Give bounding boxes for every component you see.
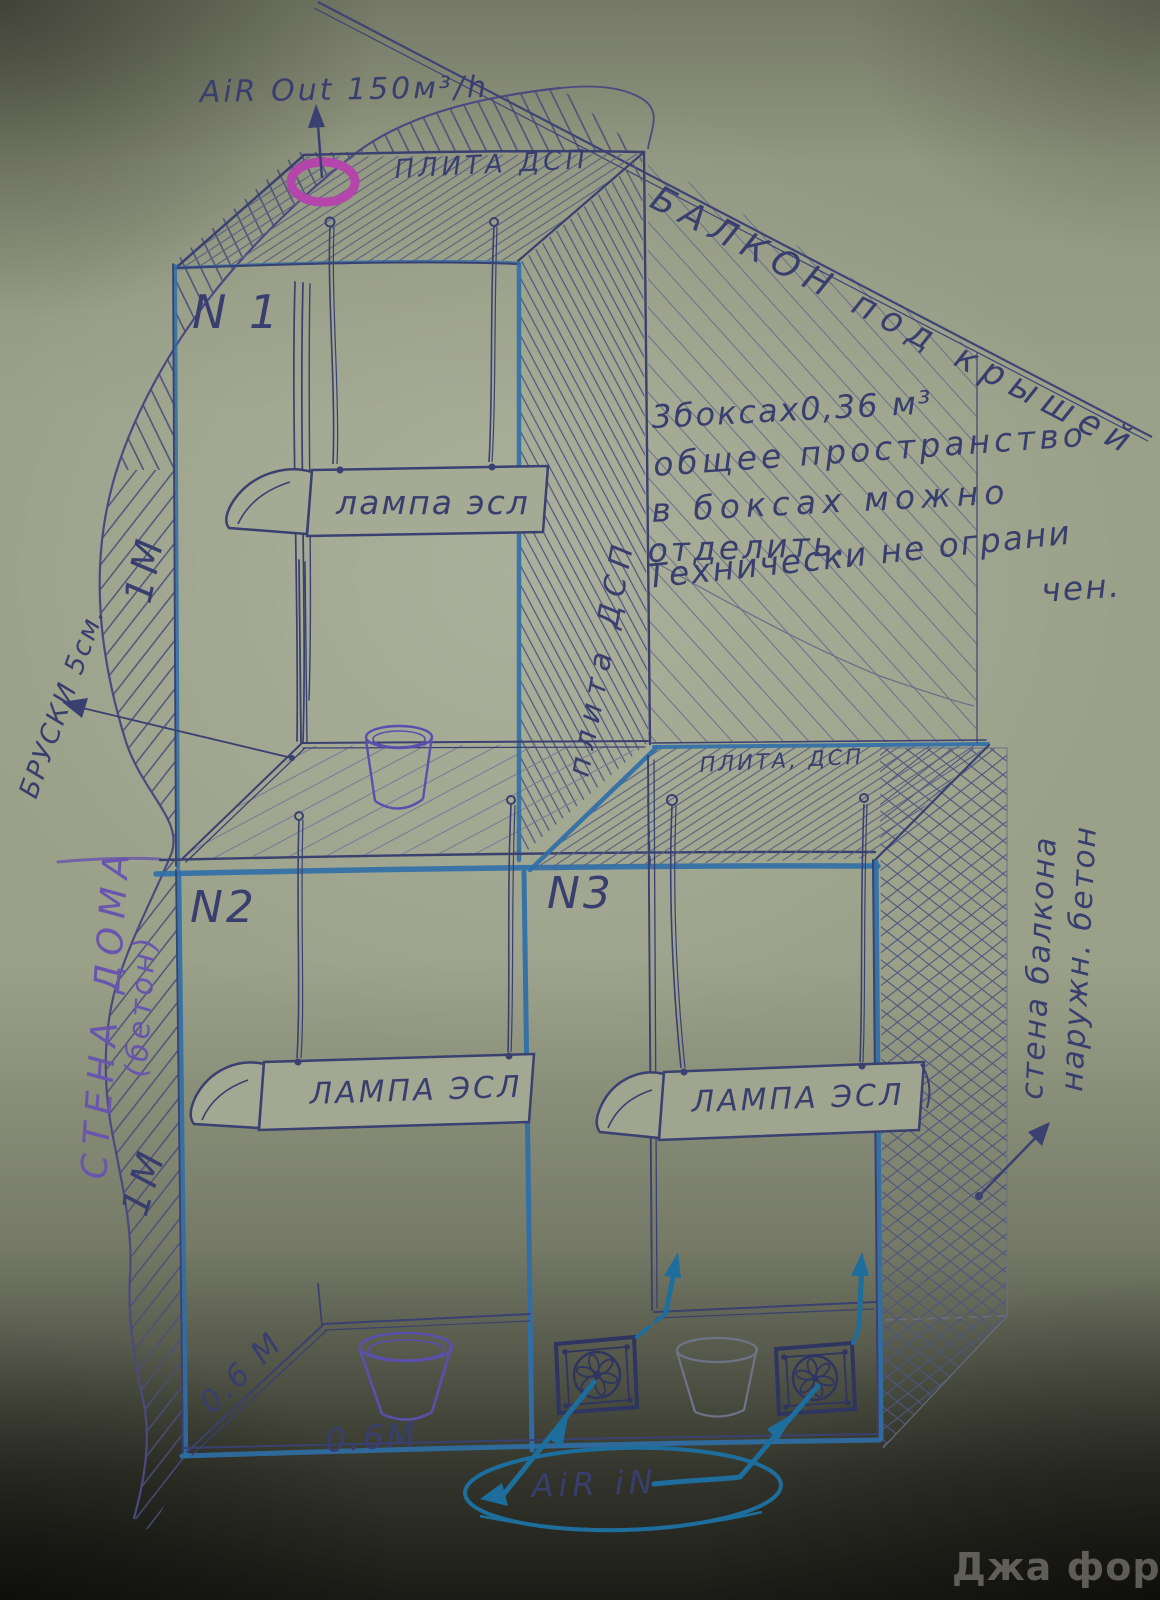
fan-icon xyxy=(776,1343,855,1414)
photo-of-sketch: лампа эсл N 1 AiR Out 150м³/h ПЛИТА ДСП xyxy=(0,0,1160,1600)
box-n1-label: N 1 xyxy=(192,285,282,339)
air-in-group: AiR iN xyxy=(464,1382,818,1534)
battens-label: БРУСКИ 5см. xyxy=(13,603,111,803)
lamp-icon: ЛАМПА ЭСЛ xyxy=(191,1053,534,1131)
box-n3-label: N3 xyxy=(547,868,614,919)
note-line: чен. xyxy=(1040,566,1122,610)
dim-width: 0.6М xyxy=(324,1415,419,1460)
lamp-icon: ЛАМПА ЭСЛ xyxy=(597,1062,930,1140)
dim-depth: 0.6 М xyxy=(193,1325,291,1421)
box-n2-label: N2 xyxy=(190,882,257,933)
air-in-label: AiR iN xyxy=(529,1463,658,1505)
air-out-label: AiR Out 150м³/h xyxy=(198,70,490,110)
n1-lamp-label: лампа эсл xyxy=(335,483,530,522)
watermark: Джа форум xyxy=(952,1545,1160,1589)
n3-lamp-label: ЛАМПА ЭСЛ xyxy=(690,1078,905,1120)
lamp-icon: лампа эсл xyxy=(226,464,548,537)
pot-icon xyxy=(677,1338,757,1417)
growbox-sketch: лампа эсл N 1 AiR Out 150м³/h ПЛИТА ДСП xyxy=(0,0,1160,1600)
n2-lamp-label: ЛАМПА ЭСЛ xyxy=(308,1070,523,1112)
fan-icon xyxy=(556,1337,637,1413)
pot-icon xyxy=(360,1333,452,1420)
airflow-up-arrow xyxy=(637,1252,869,1343)
